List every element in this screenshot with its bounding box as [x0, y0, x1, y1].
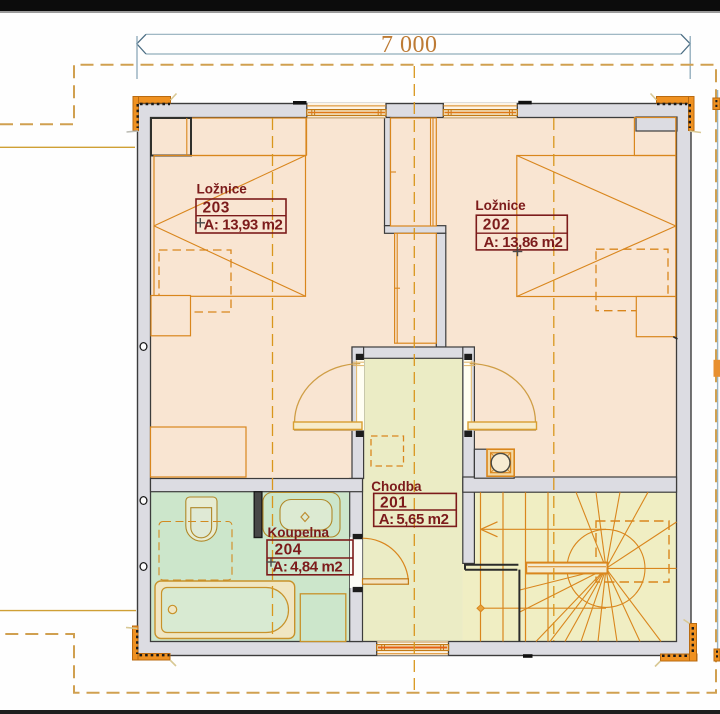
- svg-text:203: 203: [203, 200, 230, 217]
- svg-text:A: 4,84 m2: A: 4,84 m2: [273, 559, 343, 576]
- svg-text:A: 5,65 m2: A: 5,65 m2: [379, 511, 449, 528]
- svg-text:A: 13,93 m2: A: 13,93 m2: [204, 217, 283, 234]
- svg-text:Koupelna: Koupelna: [268, 525, 330, 540]
- svg-text:204: 204: [275, 542, 302, 559]
- svg-text:A: 13,86 m2: A: 13,86 m2: [484, 234, 563, 251]
- svg-text:Ložnice: Ložnice: [475, 198, 526, 213]
- svg-text:Ložnice: Ložnice: [197, 182, 248, 197]
- svg-text:202: 202: [483, 217, 510, 234]
- svg-text:Chodba: Chodba: [371, 479, 422, 494]
- svg-text:7 000: 7 000: [381, 32, 438, 58]
- svg-text:201: 201: [380, 494, 407, 511]
